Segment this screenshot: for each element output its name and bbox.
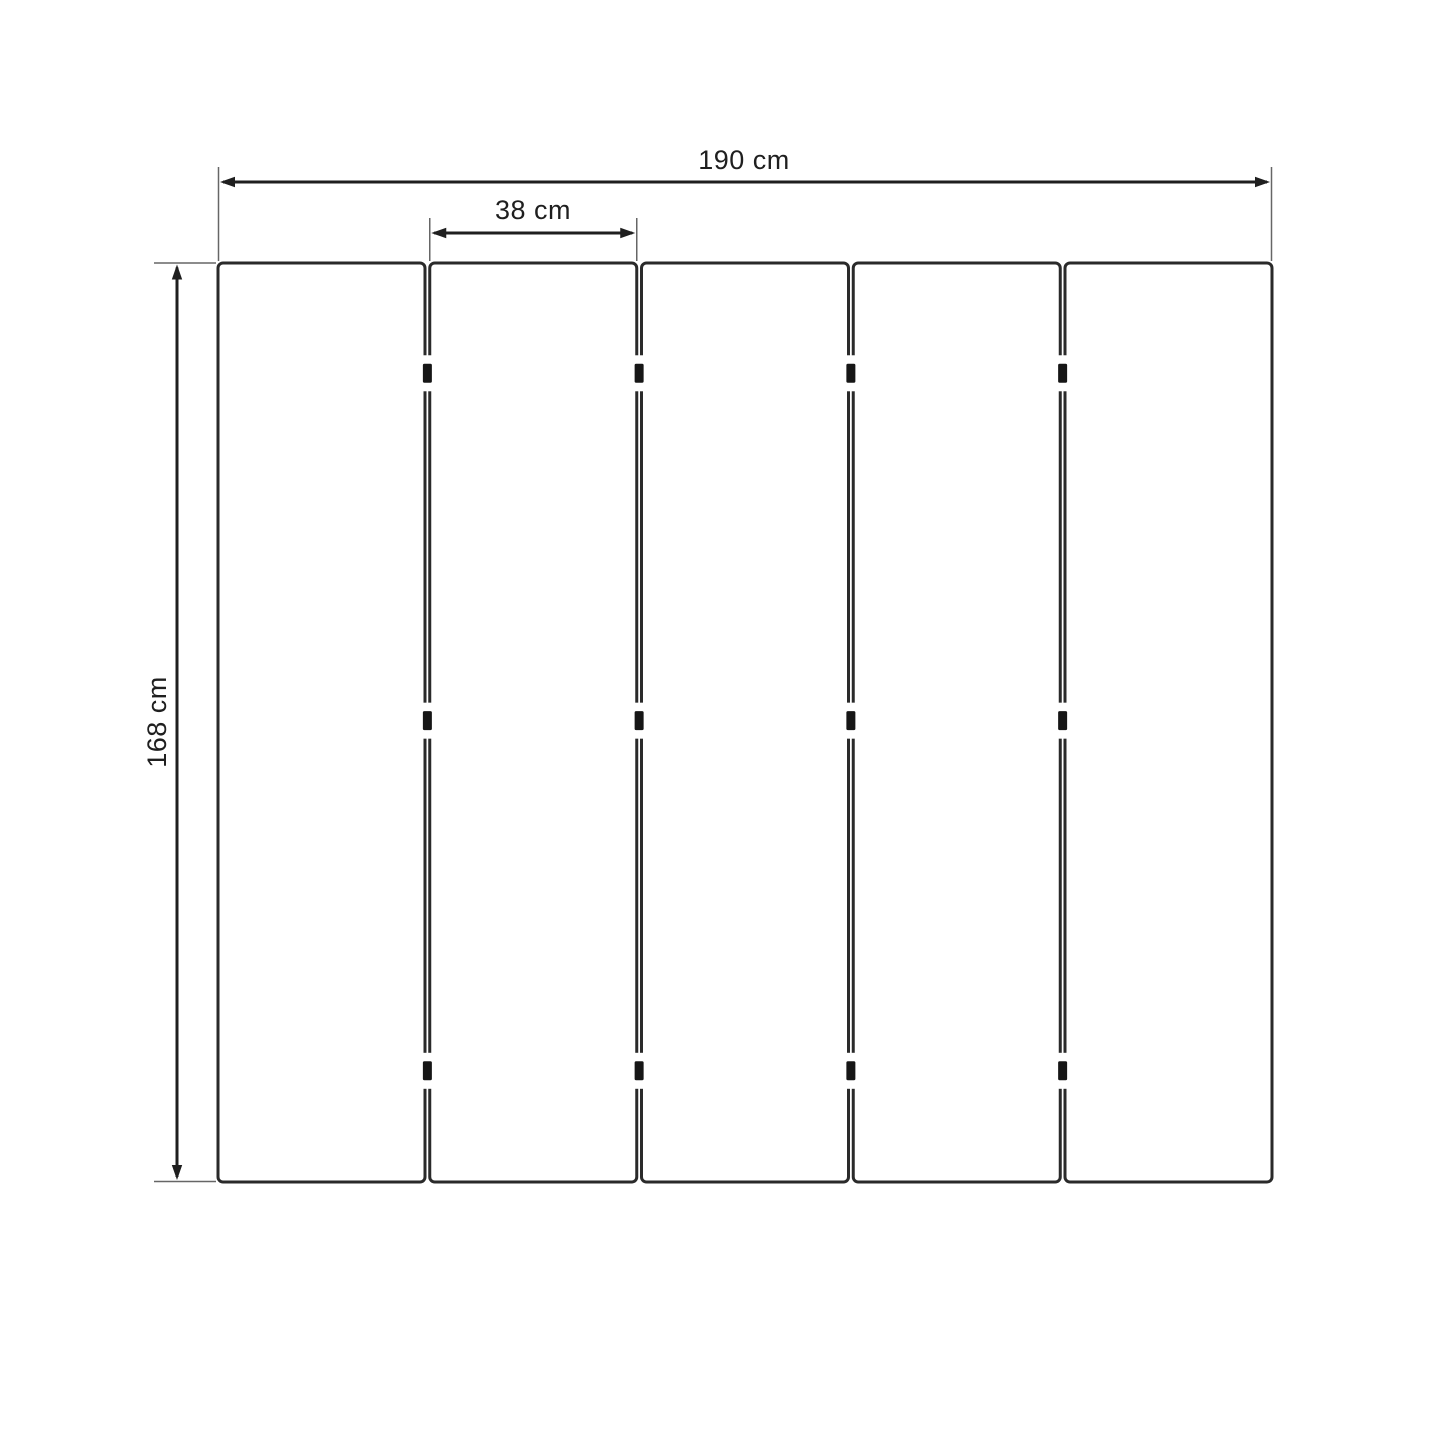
panel [642,263,849,1182]
hinge-mark [1058,1061,1067,1080]
panels-layer [218,263,1272,1182]
hinge-mark [846,1061,855,1080]
arrowhead-left [431,228,446,238]
hinge-mark [423,1061,432,1080]
hinge-mark [1058,364,1067,383]
hinge-mark [846,711,855,730]
arrowhead-right [1255,177,1270,187]
arrowhead-up [172,265,182,280]
panel-width-label: 38 cm [495,195,571,225]
diagram-svg: 190 cm 38 cm 168 cm [0,0,1445,1445]
arrowhead-right [620,228,635,238]
arrowhead-left [220,177,235,187]
panel [430,263,637,1182]
panel [853,263,1060,1182]
panel [1065,263,1272,1182]
hinge-mark [635,364,644,383]
dimension-drawing: 190 cm 38 cm 168 cm [0,0,1445,1445]
hinge-mark [635,1061,644,1080]
hinge-mark [635,711,644,730]
panel [218,263,425,1182]
total-width-label: 190 cm [698,145,790,175]
hinge-mark [1058,711,1067,730]
hinge-mark [423,711,432,730]
arrowhead-down [172,1165,182,1180]
hinge-mark [423,364,432,383]
hinge-mark [846,364,855,383]
height-label: 168 cm [142,676,172,768]
